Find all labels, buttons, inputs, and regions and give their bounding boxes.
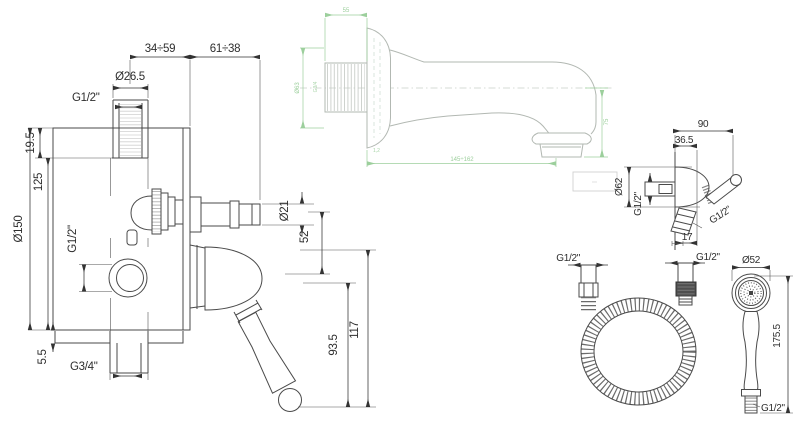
spout-body-bottom xyxy=(390,113,551,139)
holder-dim-depth: 36.5 xyxy=(675,135,694,146)
mixer-diverter-disc3 xyxy=(168,197,175,226)
mixer-outlet-pipe xyxy=(201,203,230,226)
dim-plate-diameter: Ø150 xyxy=(13,216,25,243)
hose-drawing: G1/2" G1/2" xyxy=(556,241,720,405)
mixer-lever-dome xyxy=(205,247,262,310)
handshower-dim-thread: G1/2" xyxy=(761,403,785,414)
holder-dim-width: 90 xyxy=(698,119,709,130)
mixer-bottom-pipe xyxy=(110,331,148,373)
dim-bottom-pipe-thread: G3/4" xyxy=(70,361,98,373)
holder-dim-nipple-length: 17 xyxy=(682,232,693,243)
handshower-center-plug xyxy=(749,291,753,295)
mixer-diverter-stem xyxy=(175,200,183,224)
handshower-dim-head-diameter: Ø52 xyxy=(742,255,761,266)
holder-side-view: 90 36.5 Ø62 G1/2" G1/2" 17 xyxy=(614,119,742,250)
dim-projection-b: 61÷38 xyxy=(210,43,240,55)
spout-dim-length: 145÷162 xyxy=(450,157,474,163)
handshower-handle xyxy=(743,312,759,390)
spout-dim-flange-diameter: Ø63 xyxy=(295,82,301,94)
holder-lever-tip xyxy=(731,175,742,186)
holder-dim-wall-thread: G1/2" xyxy=(633,191,644,215)
handshower-drawing: Ø52 175.5 G1/2" xyxy=(732,255,793,414)
mixer-logo-plaque xyxy=(127,230,137,245)
dim-bottom-gap: 5.5 xyxy=(37,349,49,364)
holder-dim-outlet-thread: G1/2" xyxy=(708,204,735,227)
dim-lever-length: 93.5 xyxy=(328,334,340,355)
mixer-diverter-dome xyxy=(131,196,152,230)
spout-dim-drop-height: 75 xyxy=(604,118,610,125)
hose-right-thread xyxy=(679,296,692,305)
hose-coil-outer xyxy=(581,298,696,405)
holder-dim-body-diameter: Ø62 xyxy=(614,177,625,196)
hose-dim-right-thread: G1/2" xyxy=(696,252,720,263)
mixer-plate-ledge xyxy=(55,331,183,343)
dim-center-distance: 125 xyxy=(33,173,45,191)
mixer-lever-handle xyxy=(238,312,295,393)
spout-dim-thread-length: 55 xyxy=(343,8,350,14)
reference-box xyxy=(573,172,617,191)
mixer-outlet-flange xyxy=(190,197,201,232)
mixer-top-pipe xyxy=(112,100,148,158)
hose-right-tube xyxy=(678,263,693,282)
spout-dim-thread: G3/4 xyxy=(313,81,319,92)
handshower-collar xyxy=(742,390,761,397)
dim-top-pipe-diameter: Ø26.5 xyxy=(115,71,145,83)
technical-drawing-sheet: 34÷59 61÷38 Ø26.5 G1/2" 19.5 Ø150 125 G1… xyxy=(0,0,800,442)
handshower-dim-length: 175.5 xyxy=(772,324,783,348)
dim-top-offset: 19.5 xyxy=(25,132,37,153)
spout-side-view: 55 Ø63 G3/4 1,2 145÷162 75 xyxy=(295,8,612,167)
mixer-lever-bracket xyxy=(190,245,205,309)
hose-left-tube xyxy=(581,265,596,283)
dim-spout-pipe-diameter: Ø21 xyxy=(279,201,291,222)
hose-dim-left-thread: G1/2" xyxy=(556,253,580,264)
mixer-diverter-disc2 xyxy=(161,193,168,230)
hose-coil-inner xyxy=(594,311,683,392)
spout-dim-gasket: 1,2 xyxy=(373,148,380,154)
mixer-outlet-step xyxy=(230,201,239,228)
dim-top-pipe-thread: G1/2" xyxy=(72,92,100,104)
dim-projection-a: 34÷59 xyxy=(145,43,175,55)
mixer-plate-rim xyxy=(183,128,190,330)
hose-left-fitting xyxy=(579,283,598,297)
dim-axis-distance: 52 xyxy=(299,231,311,243)
spout-tip-flare xyxy=(532,133,591,144)
holder-wall-union-inner xyxy=(659,185,672,194)
spout-aerator xyxy=(540,144,583,157)
drawing-canvas: 34÷59 61÷38 Ø26.5 G1/2" 19.5 Ø150 125 G1… xyxy=(0,0,800,442)
hose-coil-ribs xyxy=(588,305,690,399)
spout-body-top xyxy=(390,50,596,134)
dim-outlet-thread: G1/2" xyxy=(67,225,79,253)
hose-dimensions: G1/2" G1/2" xyxy=(556,252,720,265)
mixer-lever-ball xyxy=(279,389,302,412)
dim-total-height: 117 xyxy=(349,321,361,338)
mixer-section-view: 34÷59 61÷38 Ø26.5 G1/2" 19.5 Ø150 125 G1… xyxy=(13,43,376,412)
mixer-outlet-tip xyxy=(239,204,260,225)
spout-flange xyxy=(367,28,391,148)
